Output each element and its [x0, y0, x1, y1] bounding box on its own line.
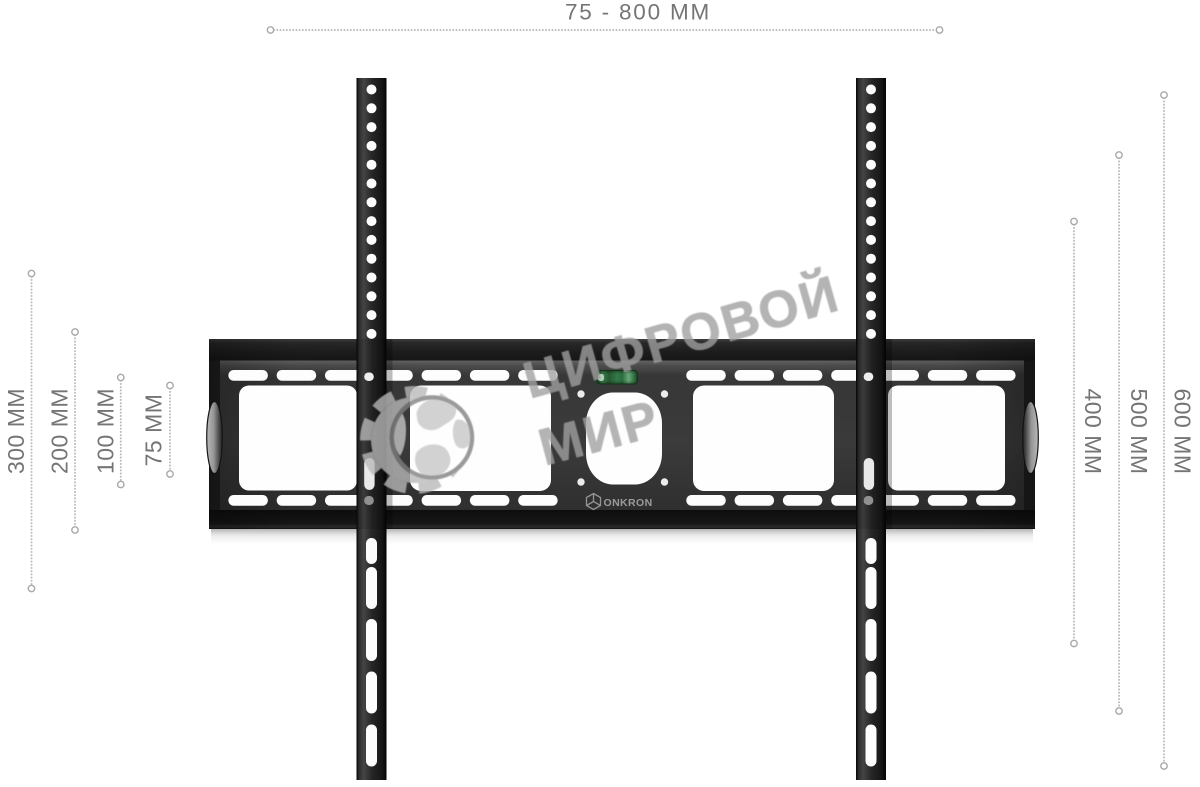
svg-text:600 MM: 600 MM	[1170, 388, 1196, 474]
svg-text:75 - 800 MM: 75 - 800 MM	[565, 0, 711, 25]
svg-text:400 MM: 400 MM	[1080, 388, 1106, 474]
svg-text:200 MM: 200 MM	[47, 388, 73, 474]
svg-text:100 MM: 100 MM	[92, 388, 118, 474]
svg-text:300 MM: 300 MM	[3, 388, 29, 474]
svg-text:ONKRON: ONKRON	[604, 497, 653, 509]
svg-text:500 MM: 500 MM	[1126, 388, 1152, 474]
svg-text:75 MM: 75 MM	[141, 394, 167, 467]
